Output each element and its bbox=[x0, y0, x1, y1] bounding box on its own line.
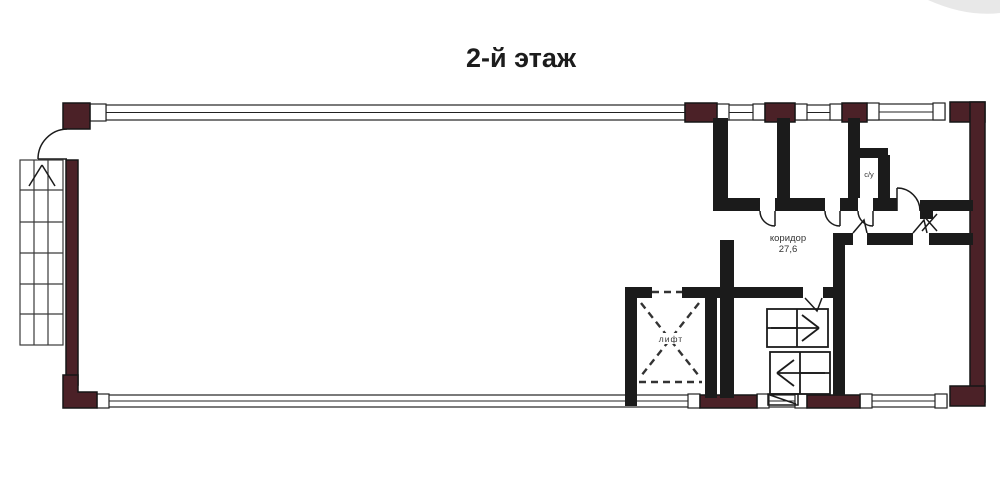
doors bbox=[38, 129, 937, 311]
entrance-door-arc bbox=[38, 129, 67, 159]
external-stair-grid bbox=[20, 160, 63, 345]
right-wall bbox=[970, 102, 985, 402]
room-door-arc bbox=[760, 211, 775, 226]
wc-label: с/у bbox=[864, 170, 874, 179]
corner-bottom-left bbox=[63, 375, 97, 408]
room-door-arc bbox=[897, 188, 920, 211]
elevator-wall-left bbox=[625, 287, 637, 406]
bottom-wall-pier bbox=[807, 395, 860, 408]
exterior-walls bbox=[63, 102, 985, 408]
elevator-wall-right bbox=[705, 295, 717, 398]
top-wall-pier bbox=[685, 103, 717, 122]
corner-pier-top-left bbox=[63, 103, 90, 129]
stair-room-wall bbox=[833, 233, 845, 395]
door-leaf bbox=[913, 220, 927, 233]
floor-plan-drawing: 2-й этаж bbox=[0, 0, 1000, 481]
room-door-arc bbox=[825, 211, 840, 226]
watermark-corner bbox=[928, 0, 1000, 14]
interior-walls bbox=[625, 118, 973, 406]
door-leaf bbox=[853, 220, 867, 233]
page-title: 2-й этаж bbox=[466, 43, 577, 73]
corner-bottom-right bbox=[950, 386, 985, 406]
window-jamb bbox=[90, 104, 106, 121]
left-wall bbox=[66, 160, 78, 385]
elevator-shaft: лифт bbox=[639, 292, 702, 382]
corridor-area-label: 27,6 bbox=[779, 244, 798, 255]
corridor-label: коридор bbox=[770, 233, 806, 244]
elevator-label: лифт bbox=[659, 334, 683, 344]
floor-plan-page: 2-й этаж bbox=[0, 0, 1000, 481]
window-bands bbox=[90, 103, 947, 408]
up-arrow bbox=[29, 165, 42, 186]
staircase bbox=[767, 309, 830, 405]
